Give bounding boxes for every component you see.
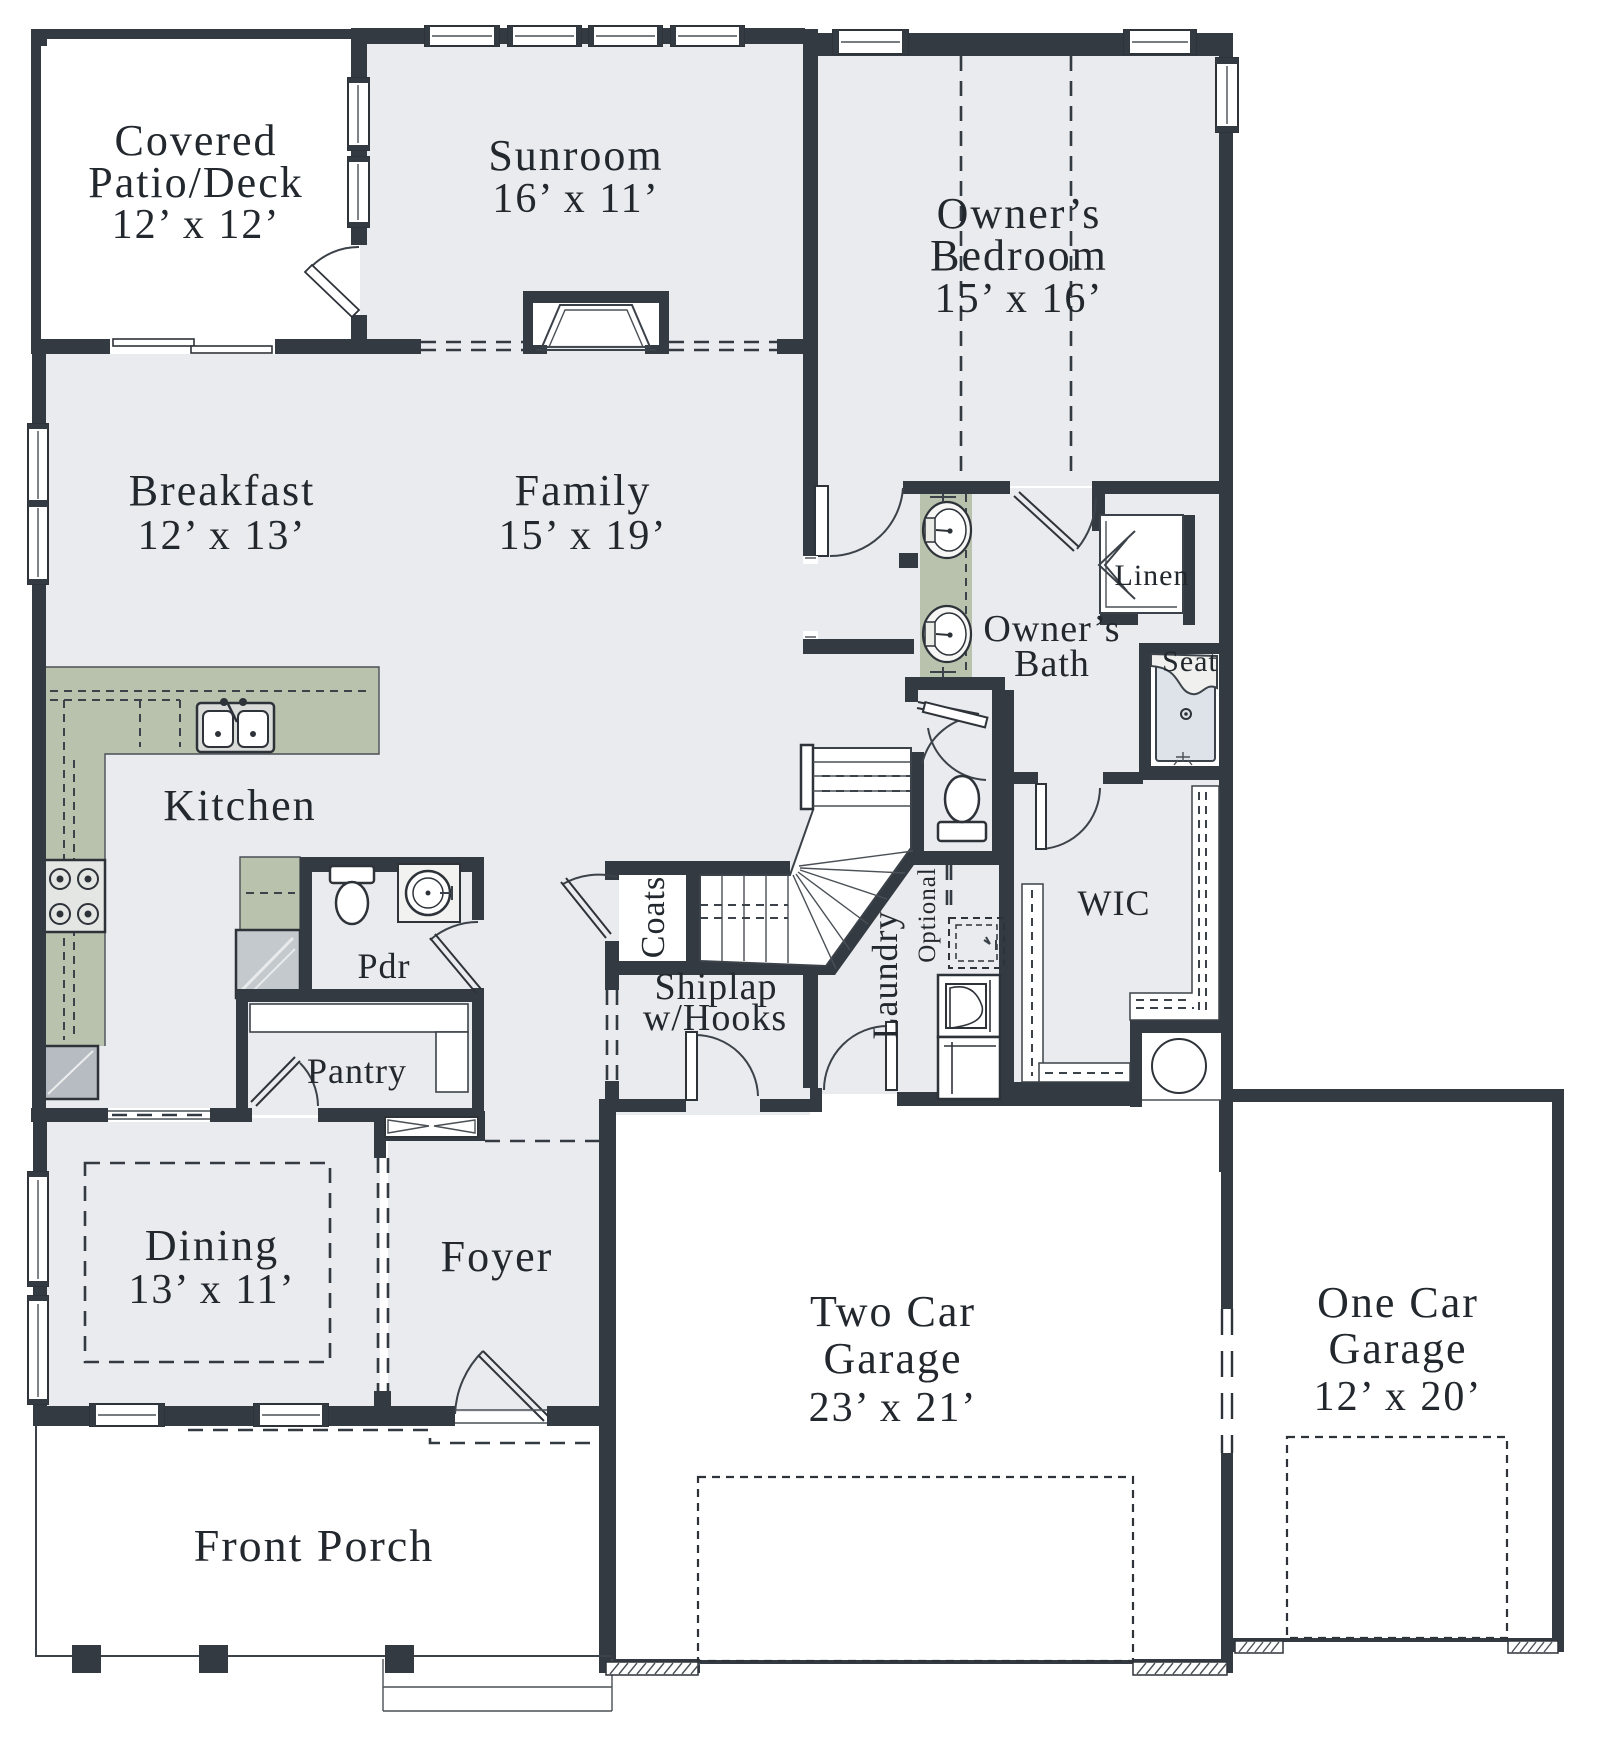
svg-text:Sunroom: Sunroom — [488, 131, 663, 180]
svg-text:Dining: Dining — [145, 1221, 279, 1270]
svg-text:One Car: One Car — [1317, 1278, 1479, 1327]
svg-text:12’ x 13’: 12’ x 13’ — [138, 513, 307, 559]
svg-text:Pdr: Pdr — [357, 946, 410, 986]
svg-text:Garage: Garage — [1328, 1324, 1467, 1373]
svg-text:Bedroom: Bedroom — [930, 231, 1108, 280]
svg-text:15’ x 19’: 15’ x 19’ — [499, 513, 668, 559]
svg-text:Coats: Coats — [635, 876, 672, 958]
svg-text:13’ x 11’: 13’ x 11’ — [128, 1267, 295, 1313]
svg-text:Linen: Linen — [1115, 559, 1190, 592]
svg-text:Kitchen: Kitchen — [163, 781, 316, 830]
svg-text:Breakfast: Breakfast — [129, 466, 316, 515]
svg-text:12’ x 20’: 12’ x 20’ — [1314, 1374, 1483, 1420]
svg-text:16’ x 11’: 16’ x 11’ — [492, 176, 659, 222]
svg-text:Front Porch: Front Porch — [194, 1520, 435, 1571]
svg-text:15’ x 16’: 15’ x 16’ — [935, 276, 1104, 322]
svg-text:Seat: Seat — [1162, 645, 1218, 678]
svg-text:Pantry: Pantry — [307, 1051, 407, 1091]
svg-text:Bath: Bath — [1014, 643, 1090, 685]
svg-text:WIC: WIC — [1078, 883, 1151, 923]
svg-text:Two Car: Two Car — [810, 1287, 976, 1336]
svg-text:Optional: Optional — [914, 867, 941, 963]
svg-text:Laundry: Laundry — [865, 911, 905, 1040]
svg-text:Garage: Garage — [823, 1334, 962, 1383]
svg-text:12’ x 12’: 12’ x 12’ — [112, 202, 281, 248]
svg-text:w/Hooks: w/Hooks — [643, 997, 787, 1039]
svg-text:Family: Family — [515, 466, 652, 515]
svg-text:Foyer: Foyer — [441, 1232, 554, 1281]
svg-text:Patio/Deck: Patio/Deck — [88, 158, 304, 207]
svg-text:23’ x 21’: 23’ x 21’ — [809, 1385, 978, 1431]
